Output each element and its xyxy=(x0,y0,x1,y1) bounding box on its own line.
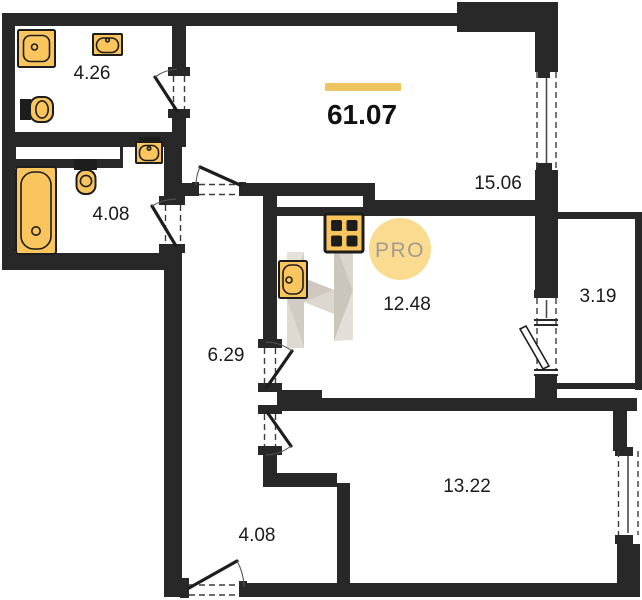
window-sill xyxy=(534,374,558,376)
duct-shaft-slot xyxy=(16,147,120,159)
stove-icon xyxy=(325,214,363,252)
room-label-balcony: 3.19 xyxy=(580,286,617,307)
wall-segment xyxy=(367,200,535,216)
door-balcony-leaf xyxy=(520,326,549,369)
washing-machine-icon xyxy=(18,30,55,67)
wall-segment xyxy=(277,398,637,411)
sink-icon xyxy=(93,34,122,55)
balcony-wall xyxy=(635,212,642,390)
room-label-living: 15.06 xyxy=(474,173,522,194)
wall-segment xyxy=(263,473,337,487)
door-bathroom-lower-swing xyxy=(152,199,181,246)
window-sill xyxy=(534,369,558,371)
door-post xyxy=(168,67,190,76)
wall-segment xyxy=(164,253,182,597)
wall-segment xyxy=(535,170,558,293)
room-label-hallway: 4.08 xyxy=(239,525,276,546)
wall-segment xyxy=(263,183,277,343)
window-post xyxy=(534,290,558,298)
balcony-wall xyxy=(557,212,642,219)
door-kitchen-swing xyxy=(265,342,293,387)
accent-bar xyxy=(325,83,401,91)
wall-segment xyxy=(535,2,558,72)
room-label-corridor: 6.29 xyxy=(208,345,245,366)
window-post xyxy=(615,535,633,544)
window-sill xyxy=(534,324,558,326)
total-area-label: 61.07 xyxy=(327,99,397,130)
door-post xyxy=(258,446,282,455)
window-bedroom xyxy=(619,451,639,535)
floor-plan: 61.07 PRO 4.26 4.08 15.06 12.48 3.19 6.2… xyxy=(0,0,642,600)
wall-segment xyxy=(2,253,182,270)
wall-segment xyxy=(172,118,186,132)
wall-segment xyxy=(164,583,182,597)
toilet-icon xyxy=(20,97,53,122)
door-corridor-swing xyxy=(196,167,240,195)
wall-segment xyxy=(164,147,182,199)
wall-segment xyxy=(182,183,192,196)
balcony-wall xyxy=(557,383,642,389)
total-area: 61.07 xyxy=(325,83,401,130)
toilet-icon xyxy=(74,159,97,194)
wall-segment xyxy=(613,411,627,451)
door-entrance-swing xyxy=(189,561,244,595)
wall-segment xyxy=(337,483,350,583)
wall-segment xyxy=(245,583,640,597)
pro-badge: PRO xyxy=(369,218,431,280)
window-post xyxy=(615,447,633,456)
door-post xyxy=(159,244,185,253)
sink-icon xyxy=(136,137,162,163)
bathtub-icon xyxy=(16,167,56,254)
window-post xyxy=(538,70,550,78)
kitchen-sink-icon xyxy=(279,261,307,298)
pro-badge-label: PRO xyxy=(375,239,425,262)
room-label-kitchen: 12.48 xyxy=(383,294,431,315)
wall-segment xyxy=(617,544,640,597)
room-label-bathroom-top: 4.26 xyxy=(74,63,111,84)
wall-segment xyxy=(172,26,186,72)
room-label-bedroom: 13.22 xyxy=(443,476,491,497)
window-living xyxy=(537,72,556,170)
door-post xyxy=(168,109,190,118)
room-label-bathroom-lower: 4.08 xyxy=(93,204,130,225)
wall-segment xyxy=(2,13,457,26)
